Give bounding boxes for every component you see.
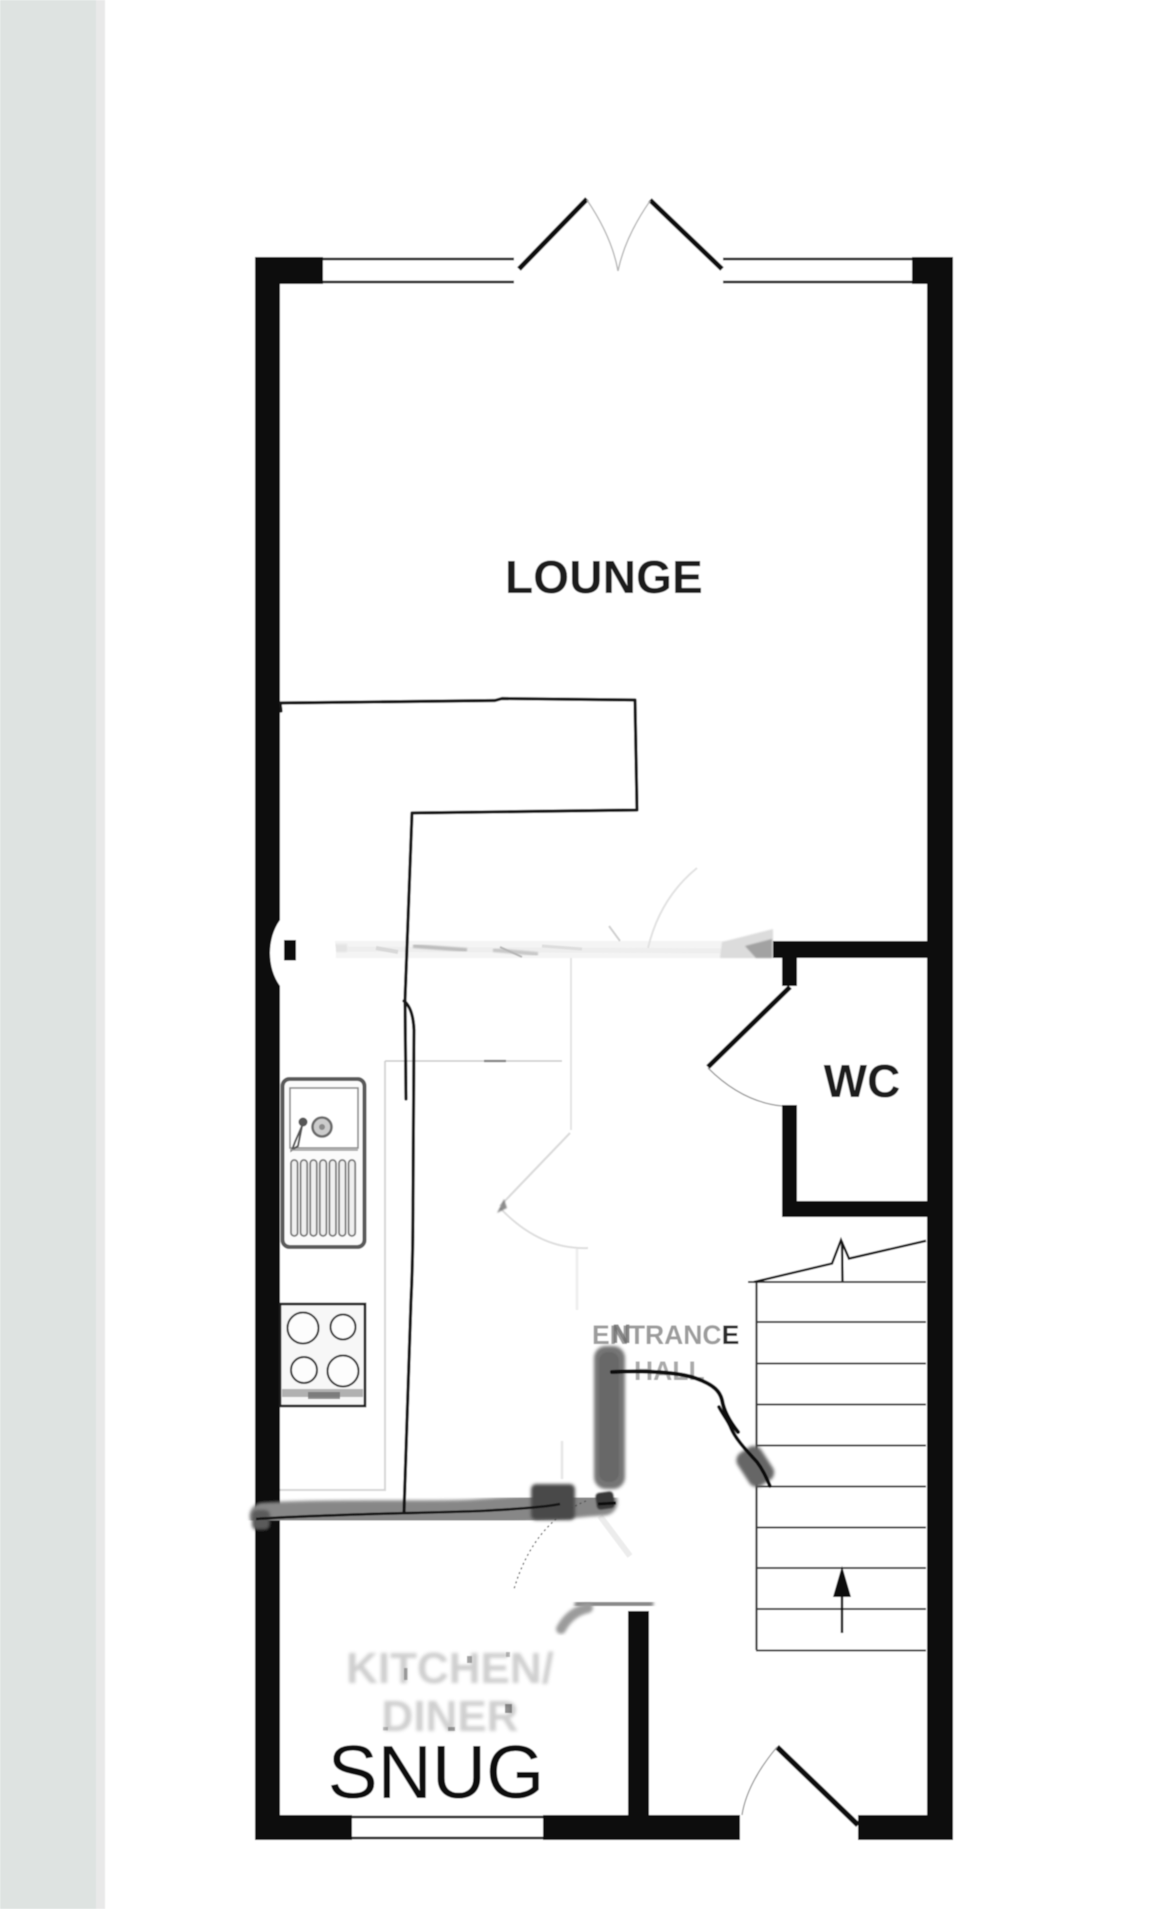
- svg-text:WC: WC: [824, 1055, 901, 1107]
- svg-text:LOUNGE: LOUNGE: [505, 551, 703, 603]
- svg-text:KITCHEN/: KITCHEN/: [346, 1644, 554, 1693]
- svg-text:SNUG: SNUG: [328, 1730, 545, 1814]
- svg-text:N: N: [612, 1319, 631, 1349]
